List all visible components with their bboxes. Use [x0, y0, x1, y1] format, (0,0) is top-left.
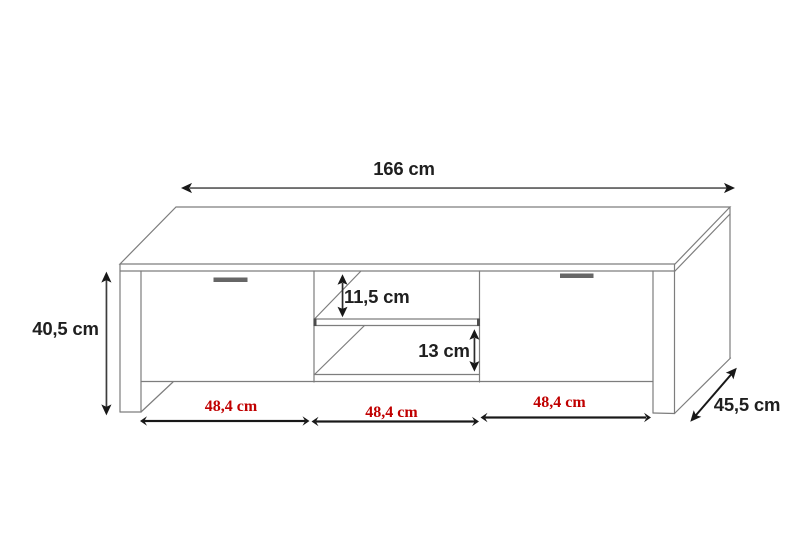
svg-text:48,4 cm: 48,4 cm	[205, 398, 258, 415]
svg-text:13 cm: 13 cm	[418, 340, 469, 361]
svg-text:45,5 cm: 45,5 cm	[714, 394, 781, 415]
svg-text:48,4 cm: 48,4 cm	[365, 404, 418, 421]
svg-text:40,5 cm: 40,5 cm	[32, 318, 99, 339]
svg-text:166 cm: 166 cm	[373, 158, 435, 179]
svg-text:11,5 cm: 11,5 cm	[344, 286, 409, 307]
svg-text:48,4 cm: 48,4 cm	[533, 394, 586, 411]
